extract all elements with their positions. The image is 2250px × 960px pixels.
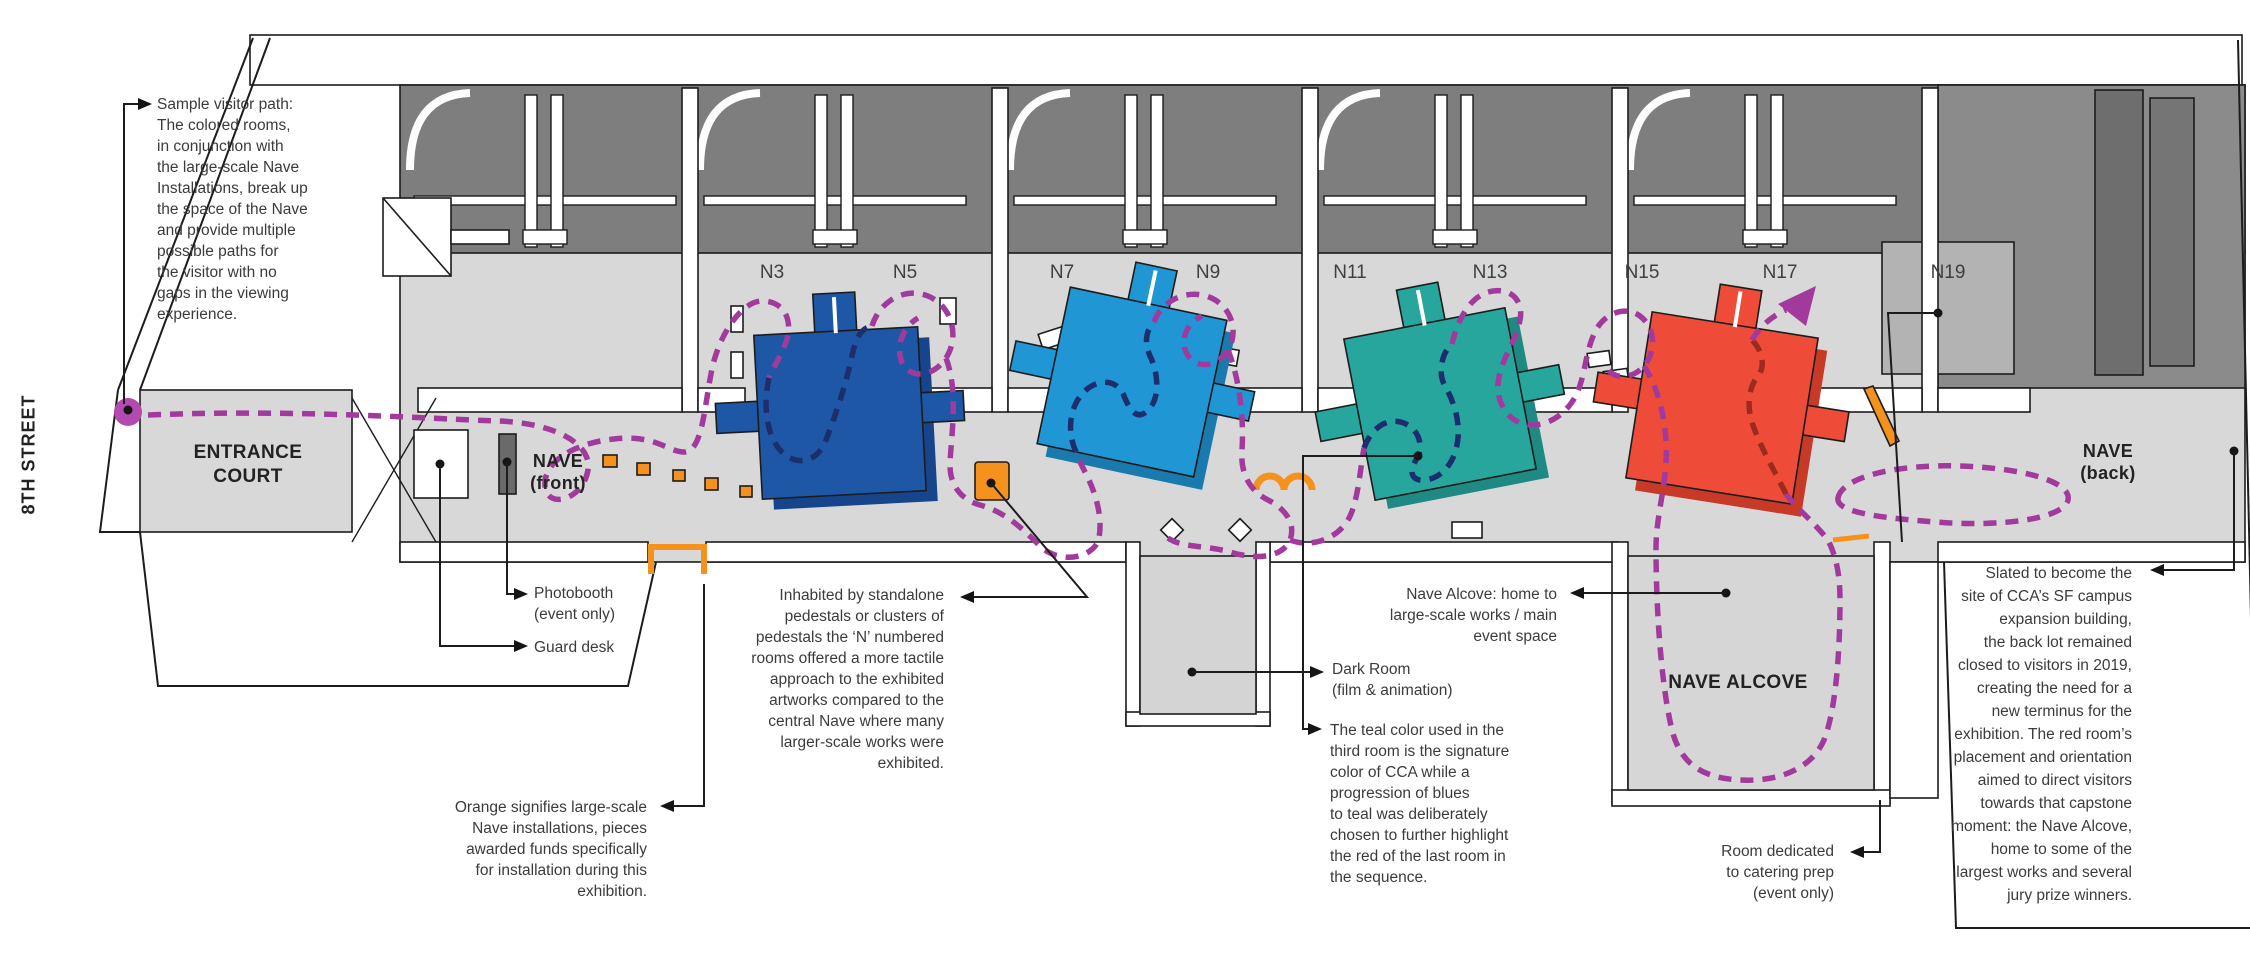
text-line: exhibition. bbox=[421, 881, 647, 902]
back-lot-storage bbox=[2095, 90, 2143, 375]
text-line: The teal color used in the bbox=[1330, 720, 1570, 741]
text-line: Nave Alcove: home to bbox=[1353, 584, 1557, 605]
room-label-n17: N17 bbox=[1752, 262, 1808, 284]
annotation-back-lot: Slated to become thesite of CCA’s SF cam… bbox=[1908, 562, 2132, 907]
text-line: Orange signifies large-scale bbox=[421, 797, 647, 818]
text-line: Guard desk bbox=[534, 637, 614, 658]
room-label-n15: N15 bbox=[1614, 262, 1670, 284]
text-line: the sequence. bbox=[1330, 867, 1570, 888]
text-line: large-scale works / main bbox=[1353, 605, 1557, 626]
text-line: third room is the signature bbox=[1330, 741, 1570, 762]
text-line: for installation during this bbox=[421, 860, 647, 881]
text-line: larger-scale works were bbox=[710, 732, 944, 753]
text-line: Inhabited by standalone bbox=[710, 585, 944, 606]
nave-alcove-label: NAVE ALCOVE bbox=[1653, 672, 1823, 694]
text-line: and provide multiple bbox=[157, 220, 357, 241]
annotation-dark-room: Dark Room(film & animation) bbox=[1332, 659, 1453, 701]
text-line: creating the need for a bbox=[1908, 677, 2132, 700]
text-line: event space bbox=[1353, 626, 1557, 647]
text-line: pedestals the ‘N’ numbered bbox=[710, 627, 944, 648]
text-line: Sample visitor path: bbox=[157, 94, 357, 115]
text-line: (event only) bbox=[1690, 883, 1834, 904]
text-line: to catering prep bbox=[1690, 862, 1834, 883]
room-label-n7: N7 bbox=[1034, 262, 1090, 284]
nave-back-label: NAVE(back) bbox=[2058, 440, 2158, 484]
back-lot-storage bbox=[2150, 98, 2194, 366]
dark-room bbox=[1126, 542, 1270, 726]
text-line: gaps in the viewing bbox=[157, 283, 357, 304]
text-line: jury prize winners. bbox=[1908, 884, 2132, 907]
text-line: Photobooth bbox=[534, 583, 615, 604]
room-label-n19: N19 bbox=[1920, 262, 1976, 284]
annotation-sample-visitor-path: Sample visitor path:The colored rooms,in… bbox=[157, 94, 357, 325]
text-line: Installations, break up bbox=[157, 178, 357, 199]
annotation-catering-room: Room dedicatedto catering prep(event onl… bbox=[1690, 841, 1834, 904]
text-line: exhibition. The red room’s bbox=[1908, 723, 2132, 746]
annotation-nave-alcove: Nave Alcove: home tolarge-scale works / … bbox=[1353, 584, 1557, 647]
annotation-orange-installations: Orange signifies large-scaleNave install… bbox=[421, 797, 647, 902]
text-line: moment: the Nave Alcove, bbox=[1908, 815, 2132, 838]
roof-fascia bbox=[250, 35, 2242, 85]
annotation-guard-desk: Guard desk bbox=[534, 637, 614, 658]
text-line: expansion building, bbox=[1908, 608, 2132, 631]
text-line: color of CCA while a bbox=[1330, 762, 1570, 783]
text-line: aimed to direct visitors bbox=[1908, 769, 2132, 792]
text-line: the space of the Nave bbox=[157, 199, 357, 220]
room-label-n9: N9 bbox=[1180, 262, 1236, 284]
annotation-photobooth: Photobooth(event only) bbox=[534, 583, 615, 625]
room-label-n11: N11 bbox=[1322, 262, 1378, 284]
text-line: home to some of the bbox=[1908, 838, 2132, 861]
text-line: possible paths for bbox=[157, 241, 357, 262]
text-line: chosen to further highlight bbox=[1330, 825, 1570, 846]
text-line: towards that capstone bbox=[1908, 792, 2132, 815]
room-label-n5: N5 bbox=[877, 262, 933, 284]
text-line: the large-scale Nave bbox=[157, 157, 357, 178]
text-line: experience. bbox=[157, 304, 357, 325]
text-line: Nave installations, pieces bbox=[421, 818, 647, 839]
text-line: (film & animation) bbox=[1332, 680, 1453, 701]
text-line: exhibited. bbox=[710, 753, 944, 774]
text-line: in conjunction with bbox=[157, 136, 357, 157]
text-line: approach to the exhibited bbox=[710, 669, 944, 690]
text-line: Slated to become the bbox=[1908, 562, 2132, 585]
text-line: artworks compared to the bbox=[710, 690, 944, 711]
text-line: closed to visitors in 2019, bbox=[1908, 654, 2132, 677]
text-line: largest works and several bbox=[1908, 861, 2132, 884]
exhibition-floor-plan: Sample visitor path:The colored rooms,in… bbox=[0, 0, 2250, 960]
text-line: rooms offered a more tactile bbox=[710, 648, 944, 669]
room-label-n13: N13 bbox=[1462, 262, 1518, 284]
text-line: (event only) bbox=[534, 604, 615, 625]
annotation-teal-color: The teal color used in thethird room is … bbox=[1330, 720, 1570, 888]
text-line: the back lot remained bbox=[1908, 631, 2132, 654]
text-line: new terminus for the bbox=[1908, 700, 2132, 723]
text-line: Dark Room bbox=[1332, 659, 1453, 680]
text-line: The colored rooms, bbox=[157, 115, 357, 136]
nave-front-label: NAVE(front) bbox=[518, 450, 598, 494]
text-line: the red of the last room in bbox=[1330, 846, 1570, 867]
text-line: to teal was deliberately bbox=[1330, 804, 1570, 825]
text-line: the visitor with no bbox=[157, 262, 357, 283]
text-line: awarded funds specifically bbox=[421, 839, 647, 860]
room-label-n3: N3 bbox=[744, 262, 800, 284]
text-line: placement and orientation bbox=[1908, 746, 2132, 769]
text-line: progression of blues bbox=[1330, 783, 1570, 804]
text-line: site of CCA’s SF campus bbox=[1908, 585, 2132, 608]
text-line: pedestals or clusters of bbox=[710, 606, 944, 627]
annotation-numbered-rooms: Inhabited by standalonepedestals or clus… bbox=[710, 585, 944, 774]
text-line: Room dedicated bbox=[1690, 841, 1834, 862]
street-label: 8TH STREET bbox=[19, 390, 40, 520]
text-line: central Nave where many bbox=[710, 711, 944, 732]
entrance-court-label: ENTRANCECOURT bbox=[163, 441, 333, 489]
